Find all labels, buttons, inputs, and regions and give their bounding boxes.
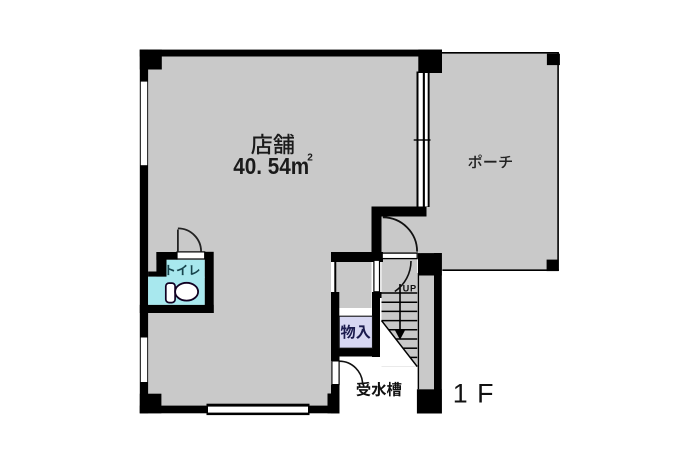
svg-text:1 F: 1 F — [453, 378, 495, 408]
svg-text:40. 54m: 40. 54m — [233, 153, 309, 179]
svg-text:UP: UP — [403, 284, 417, 294]
svg-text:2: 2 — [307, 152, 313, 163]
